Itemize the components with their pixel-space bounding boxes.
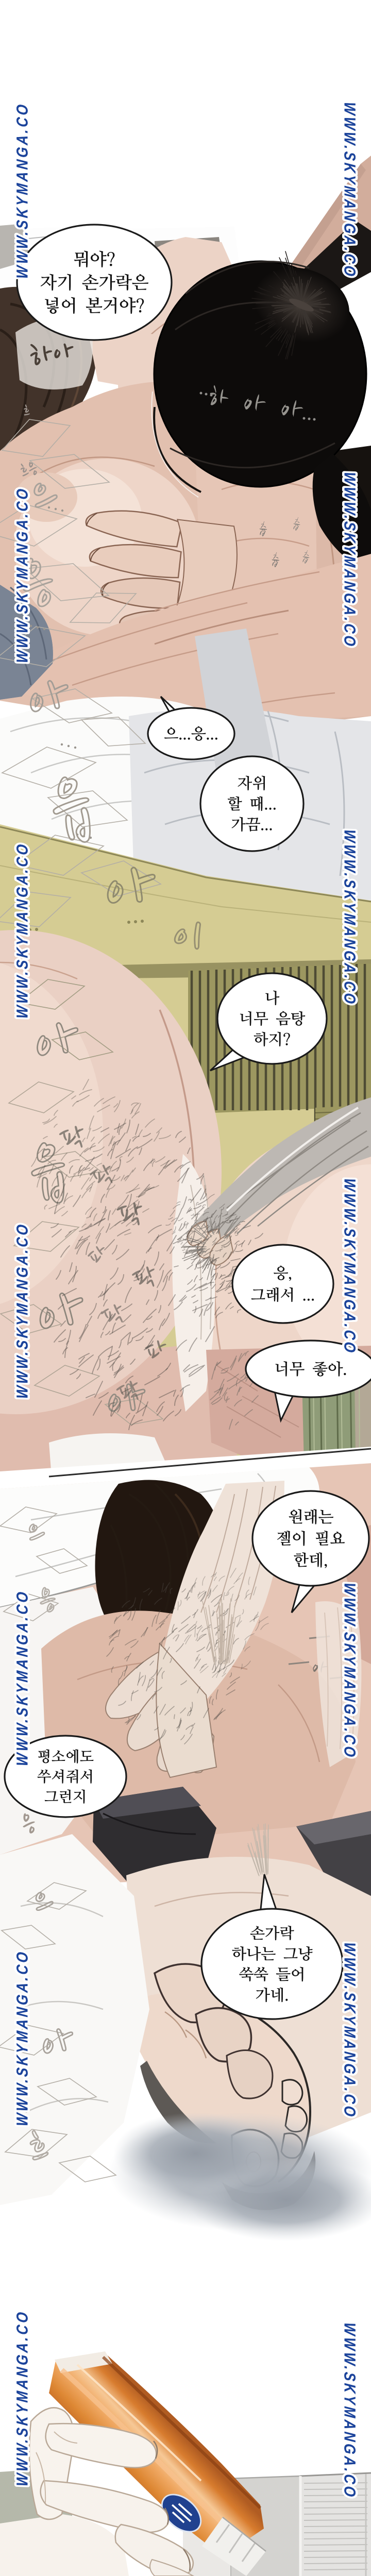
svg-text:WWW.SKYMANGA.CO: WWW.SKYMANGA.CO: [14, 1589, 31, 1767]
svg-text:WWW.SKYMANGA.CO: WWW.SKYMANGA.CO: [14, 2309, 31, 2487]
svg-text:WWW.SKYMANGA.CO: WWW.SKYMANGA.CO: [14, 1222, 31, 1399]
svg-text:WWW.SKYMANGA.CO: WWW.SKYMANGA.CO: [14, 841, 31, 1019]
svg-text:WWW.SKYMANGA.CO: WWW.SKYMANGA.CO: [341, 1941, 358, 2119]
svg-text:WWW.SKYMANGA.CO: WWW.SKYMANGA.CO: [341, 1177, 358, 1355]
svg-text:WWW.SKYMANGA.CO: WWW.SKYMANGA.CO: [341, 101, 358, 279]
svg-text:WWW.SKYMANGA.CO: WWW.SKYMANGA.CO: [341, 1582, 358, 1759]
svg-text:WWW.SKYMANGA.CO: WWW.SKYMANGA.CO: [14, 101, 31, 279]
svg-text:WWW.SKYMANGA.CO: WWW.SKYMANGA.CO: [341, 2321, 358, 2499]
svg-text:WWW.SKYMANGA.CO: WWW.SKYMANGA.CO: [341, 828, 358, 1006]
svg-text:WWW.SKYMANGA.CO: WWW.SKYMANGA.CO: [14, 486, 31, 664]
svg-text:WWW.SKYMANGA.CO: WWW.SKYMANGA.CO: [14, 1949, 31, 2127]
svg-text:WWW.SKYMANGA.CO: WWW.SKYMANGA.CO: [341, 471, 358, 649]
